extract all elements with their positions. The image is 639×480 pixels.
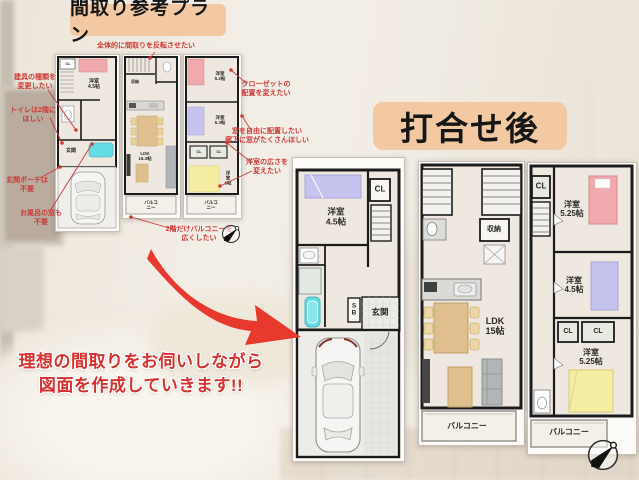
after-meeting-title: 打合せ後 (373, 102, 567, 150)
sofa (482, 359, 502, 405)
label-cl1: CL (196, 150, 201, 154)
label-sb: S B (352, 303, 357, 318)
label-balcony: バルコニー (143, 200, 158, 210)
bed-yellow (189, 166, 219, 192)
label-genkan: 玄関 (371, 308, 388, 318)
label-cl-top: CL (536, 183, 547, 192)
label-cl2: CL (216, 150, 221, 154)
label-cl2: CL (593, 328, 602, 336)
label-ldk: LDK 16.3帖 (138, 151, 151, 161)
large-plan-3f: CL 洋室 5.25帖 洋室 4.5帖 CL CL 洋室 5.25帖 バルコニー (527, 162, 637, 455)
label-room: 洋室 4.5帖 (88, 78, 100, 89)
bathtub (89, 143, 113, 157)
driveway-tiles (364, 333, 396, 454)
background-window-frame (0, 0, 14, 480)
annotation-toilet-2f: トイレは2階に ほしい (10, 106, 56, 124)
annotation-no-porch: 玄関ポーチは 不要 (6, 176, 48, 194)
annotation-room-size: 洋室の広さを 変えたい (246, 158, 288, 176)
label-room1: 洋室 5.2帖 (215, 71, 226, 81)
label-room2: 洋室 4.5帖 (564, 277, 583, 295)
bed-purple (305, 175, 361, 198)
car (71, 172, 105, 224)
annotation-no-bath-window: お風呂の窓も 不要 (20, 209, 62, 227)
label-room1: 洋室 5.25帖 (560, 201, 584, 219)
label-room3: 洋室 5.25帖 (579, 349, 603, 367)
stairs (532, 202, 550, 236)
label-room2: 洋室 5.3帖 (215, 115, 226, 125)
label-cl1: CL (563, 328, 572, 336)
label-genkan: 玄関 (66, 148, 76, 154)
annotation-fittings: 建具の種類を 変更したい (14, 73, 56, 91)
tv (127, 154, 131, 176)
caption-line-2: 図面を作成していきます!! (8, 374, 274, 398)
car (312, 338, 364, 452)
sofa (166, 146, 176, 188)
label-balcony: バルコニー (549, 429, 589, 438)
stairs-right (482, 169, 521, 215)
stairs (371, 205, 391, 241)
label-balcony: バルコニー (203, 200, 219, 210)
label-room: 洋室 4.5帖 (326, 207, 346, 226)
small-plan-2f: 収納 LDK 16.3帖 バルコニー (122, 54, 181, 219)
coffee-table (448, 367, 472, 407)
toilet (65, 111, 72, 120)
bed-yellow (569, 370, 613, 412)
compass-icon-2 (586, 438, 620, 472)
caption-text: 理想の間取りをお伺いしながら 図面を作成していきます!! (8, 350, 274, 398)
stairs-left (422, 169, 452, 215)
bed-purple (188, 107, 204, 135)
annotation-windows: 窓を自由に配置したい 廊下に窓がたくさんほしい (225, 127, 309, 145)
label-balcony: バルコニー (447, 423, 487, 432)
label-storage: 収納 (131, 80, 139, 84)
dining-table (434, 303, 468, 353)
toilet (423, 219, 446, 240)
bed-purple (591, 262, 618, 310)
floorplan-poster: 間取り参考プラン 打合せ後 全体的に間取りを反転させたい 建具の種類を 変更した… (0, 0, 639, 480)
large-plan-2f-drawing (418, 161, 525, 446)
caption-line-1: 理想の間取りをお伺いしながら (8, 350, 274, 374)
toilet (163, 62, 171, 72)
small-plan-1f: CL 洋室 4.5帖 玄関 (55, 54, 120, 232)
large-plan-1f: CL 洋室 4.5帖 S B 玄関 (292, 157, 405, 462)
label-storage: 収納 (487, 226, 501, 234)
label-room3: 洋室 6帖 (225, 170, 232, 185)
bed-pink (589, 176, 617, 224)
label-cl: CL (65, 62, 70, 66)
pipe-space (484, 245, 505, 264)
before-plan-title: 間取り参考プラン (70, 4, 226, 36)
kitchen (422, 279, 481, 300)
bed-pink (188, 59, 204, 85)
toilet (534, 390, 550, 413)
dining-table (137, 116, 157, 146)
compass-icon (221, 224, 241, 244)
big-red-arrow (145, 243, 305, 348)
annotation-closet: クローゼットの 配置を変えたい (242, 80, 291, 98)
background-picture-frame-2 (0, 246, 44, 332)
kitchen (127, 101, 164, 110)
bed-pink (79, 59, 107, 72)
label-cl: CL (375, 186, 386, 195)
label-ldk: LDK 15帖 (485, 316, 504, 336)
large-plan-2f: 収納 LDK 15帖 バルコニー (418, 161, 525, 446)
tv (422, 359, 430, 403)
